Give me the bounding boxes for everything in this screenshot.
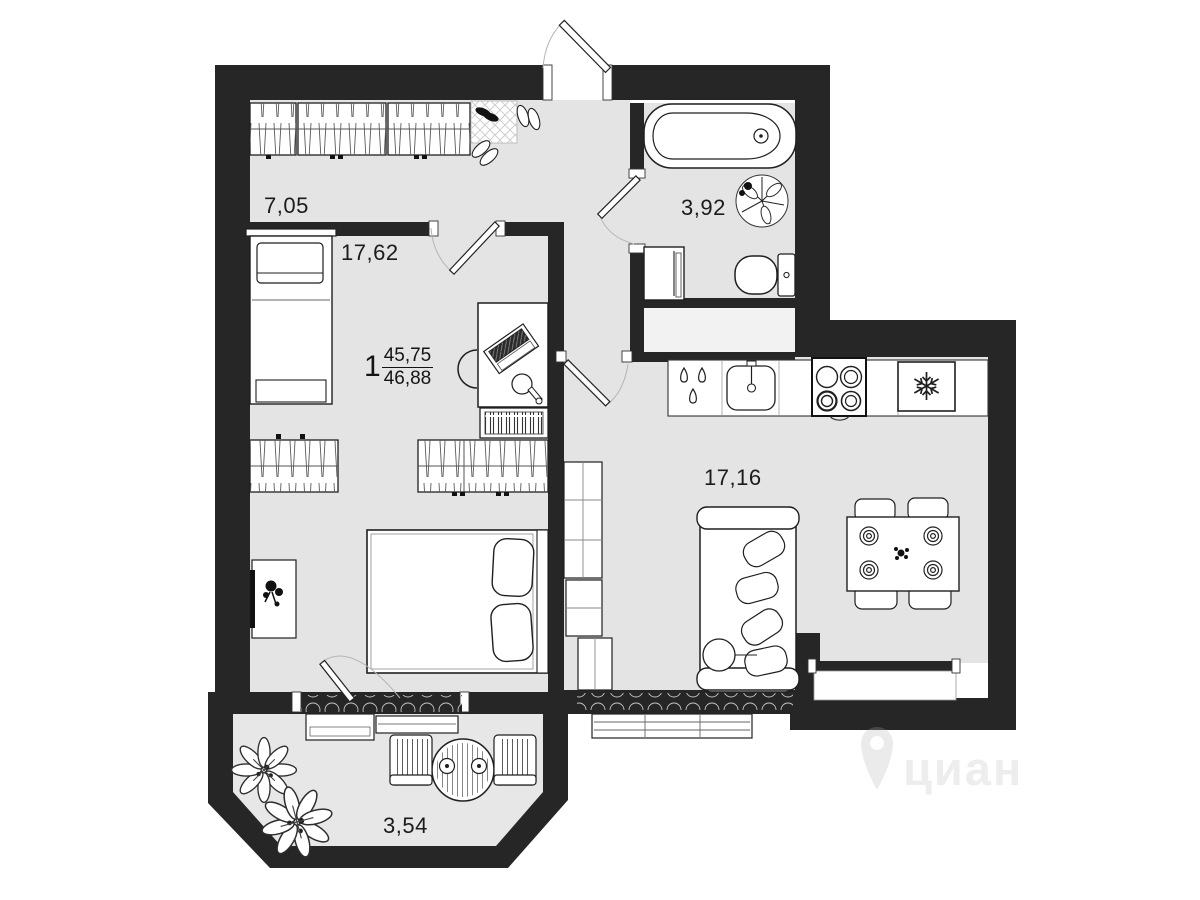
windowsill-flowers xyxy=(577,693,793,710)
kitchen-window-left xyxy=(592,714,752,738)
room-area-label-kitchen: 17,16 xyxy=(704,465,762,491)
total-area-value: 46,88 xyxy=(382,368,434,389)
balcony-window xyxy=(376,716,458,733)
single-bed xyxy=(246,229,336,404)
wall-kitchen-right xyxy=(988,320,1016,730)
door-jamb xyxy=(622,351,632,362)
room-area-label-hallway: 7,05 xyxy=(264,193,309,219)
window-jamb xyxy=(808,659,816,673)
wall-hallway-bedroom-right xyxy=(496,222,564,236)
door-jamb xyxy=(556,351,566,362)
bed-headboard xyxy=(537,530,548,673)
kitchen-window-right-sill xyxy=(814,671,956,700)
bookshelf xyxy=(480,408,548,438)
wall-bathroom-left-upper xyxy=(630,103,644,178)
door-jamb xyxy=(629,244,645,253)
wardrobe xyxy=(250,103,470,159)
wall-left xyxy=(215,65,250,714)
balcony-table xyxy=(432,739,494,801)
washing-machine xyxy=(644,247,684,300)
wardrobe xyxy=(418,440,548,496)
pillow xyxy=(490,603,534,663)
fridge xyxy=(898,362,955,411)
sofa xyxy=(697,507,799,692)
toilet xyxy=(735,254,795,296)
wall-kitchen-top xyxy=(795,320,1016,357)
windowsill-flowers xyxy=(300,695,462,712)
pillow xyxy=(492,538,535,597)
window-jamb xyxy=(292,692,301,712)
toilet-bowl xyxy=(735,256,777,294)
bathroom-plant xyxy=(736,175,788,227)
floor-closet-niche xyxy=(644,308,795,352)
wall-top xyxy=(215,65,830,100)
wall-kitchen-bottom-right xyxy=(790,698,1016,730)
toilet-tank xyxy=(778,254,795,296)
tv-icon xyxy=(250,570,255,628)
wall-bathroom-right xyxy=(795,65,830,322)
window-jamb xyxy=(952,659,960,673)
living-area-value: 45,75 xyxy=(382,346,434,368)
round-pillow xyxy=(703,639,735,671)
kitchen-counter xyxy=(668,358,988,420)
room-area-label-bathroom: 3,92 xyxy=(681,195,726,221)
shoe-mat xyxy=(471,101,517,143)
entrance-opening xyxy=(545,62,605,100)
bathtub xyxy=(644,104,796,168)
room-area-label-balcony: 3,54 xyxy=(383,813,428,839)
floor-corridor xyxy=(564,222,630,362)
map-pin-icon xyxy=(861,727,893,790)
balcony-chair xyxy=(390,735,432,785)
room-area-label-room: 17,62 xyxy=(341,240,399,266)
kitchen-sink xyxy=(727,361,775,410)
wardrobe xyxy=(250,434,338,492)
apartment-area-label: 1 45,75 46,88 xyxy=(364,346,433,389)
apartment-area-fraction: 45,75 46,88 xyxy=(382,346,434,389)
kitchen-window-right-frame xyxy=(814,661,956,671)
balcony-chair xyxy=(494,735,536,785)
stove xyxy=(812,358,866,420)
wall-partition xyxy=(548,222,564,712)
double-bed xyxy=(367,530,548,673)
tv-dresser xyxy=(250,560,296,638)
watermark-logo-text: циан xyxy=(903,741,1023,796)
apartment-number: 1 xyxy=(364,352,381,382)
floorplan-canvas: 7,05 17,62 3,92 17,16 3,54 1 45,75 46,88… xyxy=(0,0,1200,900)
door-jamb xyxy=(429,221,438,236)
door-jamb xyxy=(543,65,552,100)
